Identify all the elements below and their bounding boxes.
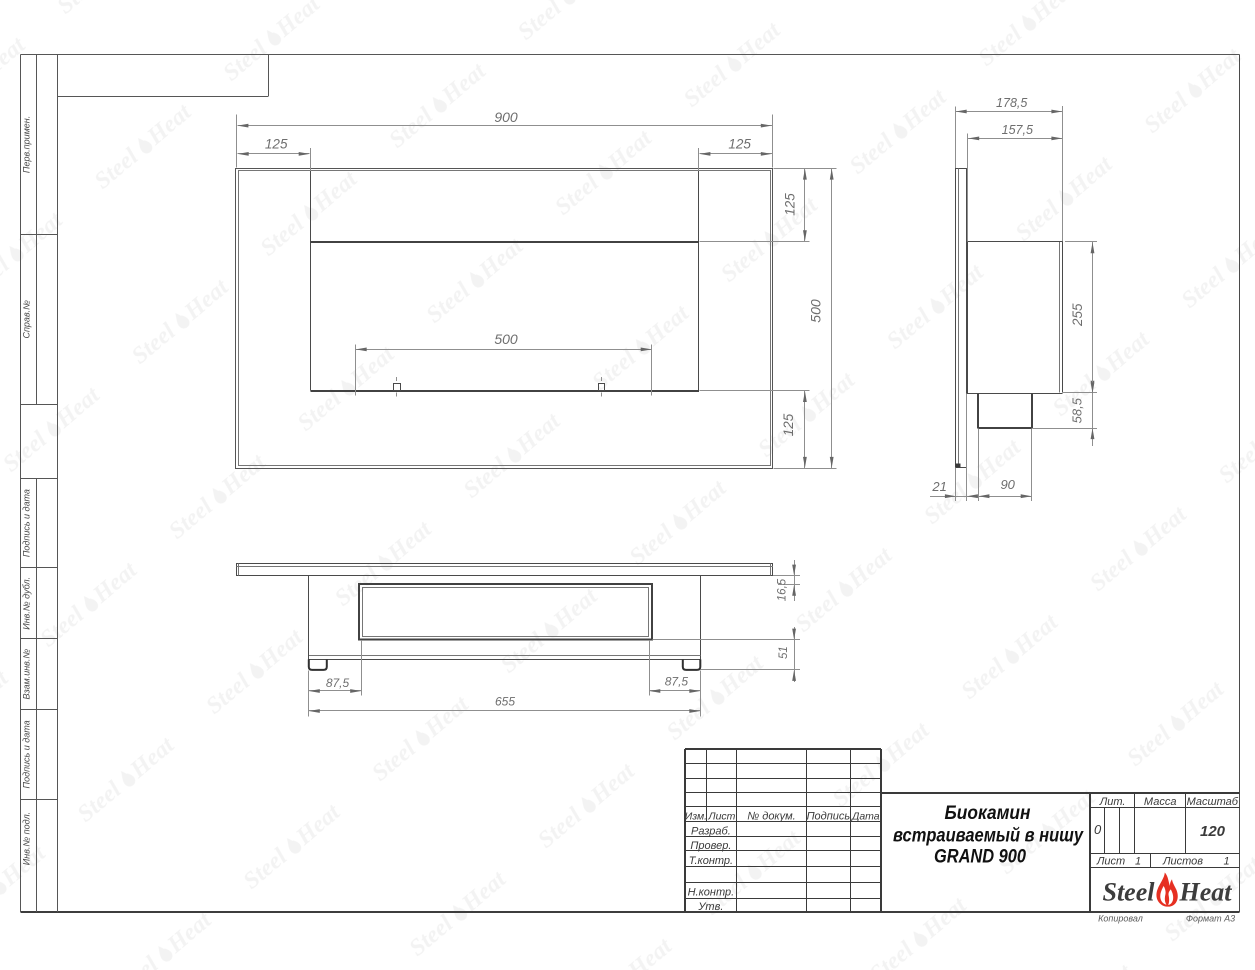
svg-text:0: 0: [1094, 822, 1102, 837]
svg-text:№ докум.: № докум.: [747, 810, 795, 822]
svg-text:Провер.: Провер.: [690, 840, 731, 852]
svg-text:Подпись и дата: Подпись и дата: [22, 720, 32, 788]
svg-text:Утв.: Утв.: [697, 901, 723, 913]
svg-text:87,5: 87,5: [665, 675, 689, 689]
svg-text:Изм.: Изм.: [685, 810, 707, 822]
svg-text:58,5: 58,5: [1070, 397, 1085, 423]
svg-text:Лист: Лист: [707, 810, 735, 822]
svg-text:Масштаб: Масштаб: [1187, 796, 1239, 808]
svg-text:16,5: 16,5: [777, 578, 789, 601]
svg-text:Н.контр.: Н.контр.: [688, 886, 735, 898]
svg-text:125: 125: [265, 137, 288, 152]
svg-text:Формат A3: Формат A3: [1186, 914, 1235, 924]
svg-text:500: 500: [494, 331, 518, 347]
svg-text:90: 90: [1000, 477, 1015, 492]
svg-text:21: 21: [931, 479, 946, 494]
svg-text:Т.контр.: Т.контр.: [689, 855, 733, 867]
svg-text:125: 125: [728, 137, 751, 152]
svg-text:178,5: 178,5: [996, 96, 1027, 110]
svg-text:Heat: Heat: [1179, 878, 1233, 907]
svg-text:GRAND 900: GRAND 900: [934, 847, 1026, 868]
svg-text:Биокамин: Биокамин: [945, 803, 1031, 824]
svg-text:1: 1: [1135, 855, 1141, 867]
svg-text:Инв.№ подл.: Инв.№ подл.: [22, 812, 32, 865]
svg-text:Лист: Лист: [1096, 855, 1125, 867]
svg-text:Подпись и дата: Подпись и дата: [22, 489, 32, 557]
svg-text:Копировал: Копировал: [1098, 914, 1143, 924]
svg-text:900: 900: [494, 109, 518, 125]
svg-text:655: 655: [495, 695, 515, 709]
svg-text:Справ.№: Справ.№: [22, 300, 32, 339]
svg-text:Steel: Steel: [1103, 878, 1156, 907]
svg-text:51: 51: [778, 646, 790, 659]
svg-text:Листов: Листов: [1162, 855, 1203, 867]
svg-text:120: 120: [1200, 823, 1226, 840]
svg-text:Дата: Дата: [851, 810, 880, 822]
svg-text:157,5: 157,5: [1002, 123, 1033, 137]
svg-text:1: 1: [1223, 855, 1229, 867]
svg-text:Взам.инв.№: Взам.инв.№: [22, 649, 32, 700]
svg-text:255: 255: [1070, 303, 1085, 327]
svg-text:встраиваемый в нишу: встраиваемый в нишу: [893, 825, 1084, 846]
svg-text:Разраб.: Разраб.: [691, 825, 731, 837]
svg-text:Подпись: Подпись: [807, 810, 851, 822]
svg-text:125: 125: [782, 193, 797, 216]
svg-text:Перв.примен.: Перв.примен.: [22, 116, 32, 173]
svg-text:500: 500: [808, 299, 824, 323]
svg-text:Инв.№ дубл.: Инв.№ дубл.: [22, 577, 32, 630]
svg-text:125: 125: [781, 413, 796, 436]
svg-text:Лит.: Лит.: [1099, 796, 1126, 808]
svg-text:87,5: 87,5: [326, 676, 350, 690]
svg-text:Масса: Масса: [1144, 796, 1177, 808]
